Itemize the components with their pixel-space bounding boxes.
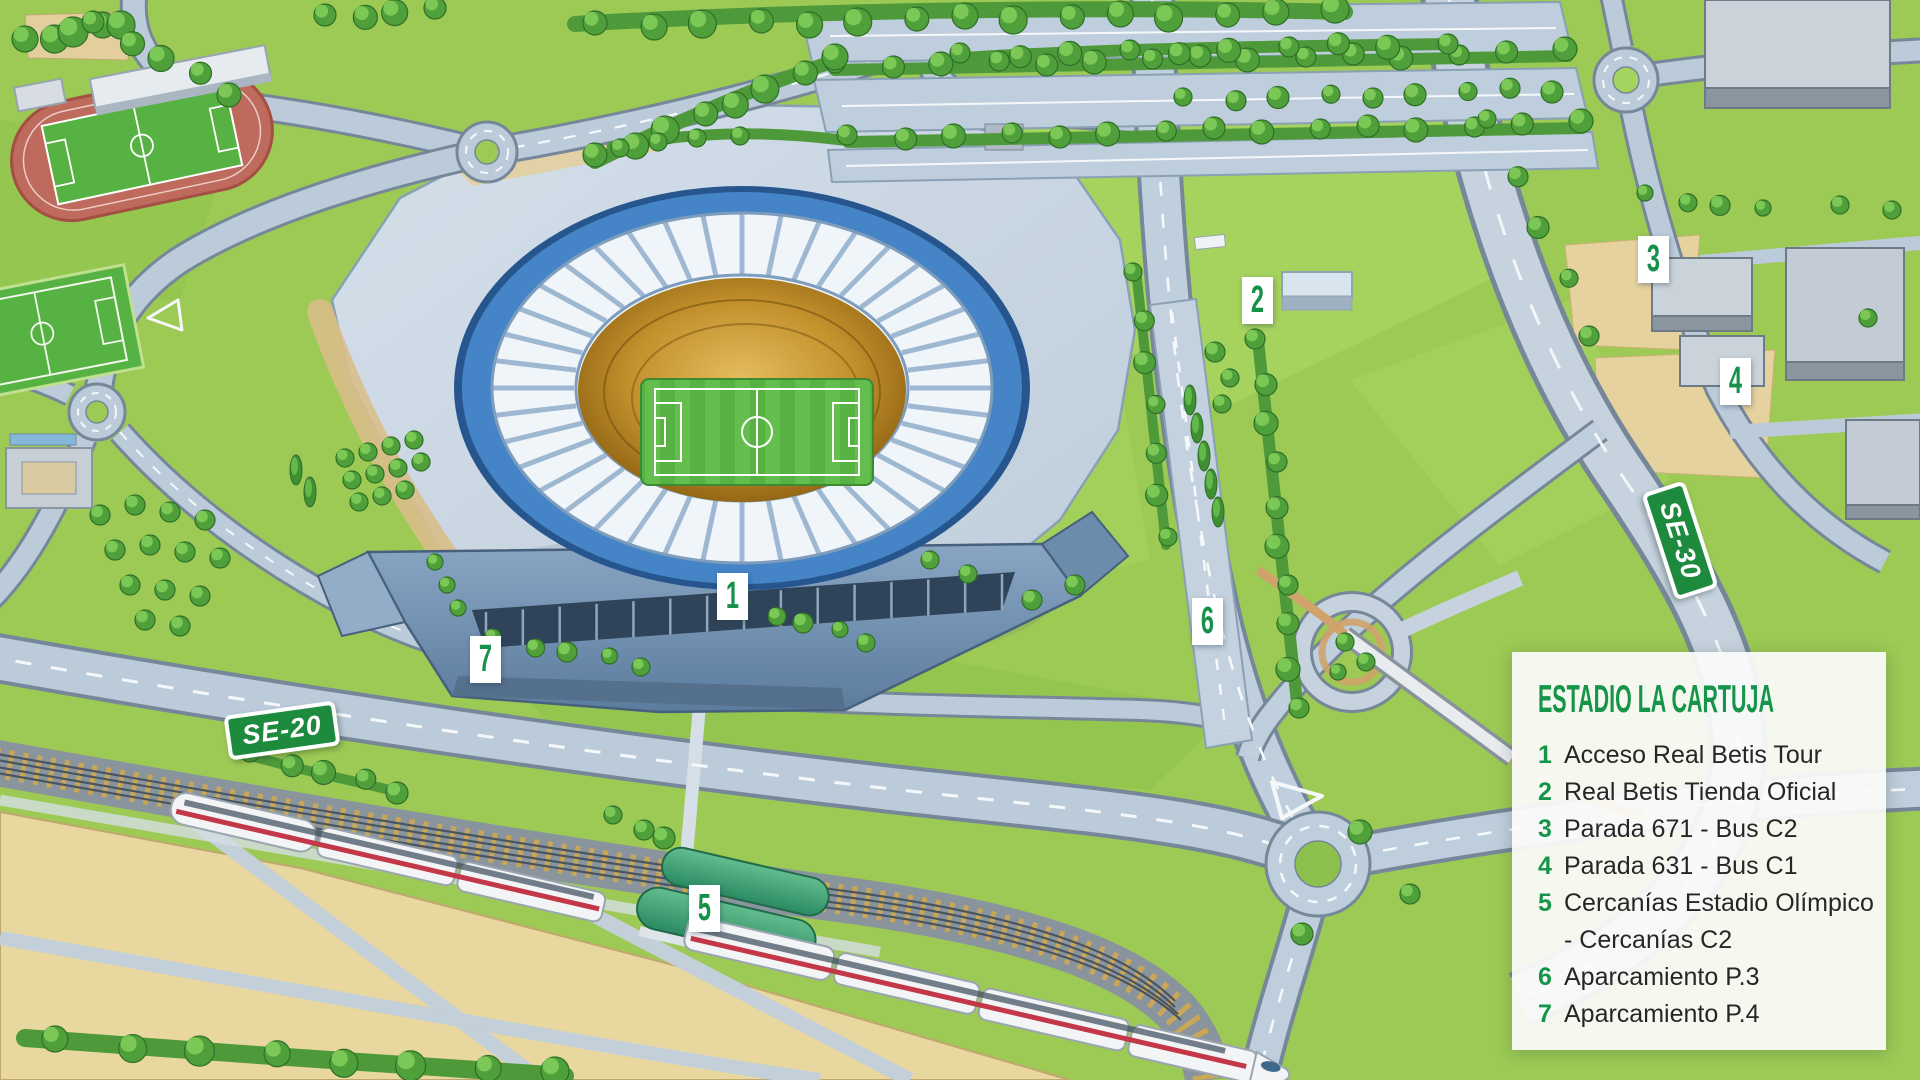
legend-item-2: 2 Real Betis Tienda Oficial [1538, 778, 1866, 815]
legend-item-3: 3 Parada 671 - Bus C2 [1538, 815, 1866, 852]
legend-item-7: 7 Aparcamiento P.4 [1538, 1000, 1866, 1037]
stadium-map: SE-20 SE-30 1 2 3 4 5 6 7 ESTADIO LA CAR… [0, 0, 1920, 1080]
legend-item-1: 1 Acceso Real Betis Tour [1538, 741, 1866, 778]
map-marker-7: 7 [470, 636, 501, 683]
legend-item-5-line2: - Cercanías C2 [1538, 926, 1866, 963]
legend-item-5: 5 Cercanías Estadio Olímpico [1538, 889, 1866, 926]
map-marker-3: 3 [1638, 236, 1669, 283]
map-marker-6: 6 [1192, 598, 1223, 645]
legend-panel: ESTADIO LA CARTUJA 1 Acceso Real Betis T… [1512, 652, 1886, 1050]
map-marker-2: 2 [1242, 277, 1273, 324]
map-marker-4: 4 [1720, 358, 1751, 405]
legend-item-4: 4 Parada 631 - Bus C1 [1538, 852, 1866, 889]
road-sign-se20-label: SE-20 [240, 710, 324, 752]
map-marker-1: 1 [717, 573, 748, 620]
legend-title: ESTADIO LA CARTUJA [1538, 680, 1718, 719]
map-marker-5: 5 [689, 885, 720, 932]
legend-item-6: 6 Aparcamiento P.3 [1538, 963, 1866, 1000]
